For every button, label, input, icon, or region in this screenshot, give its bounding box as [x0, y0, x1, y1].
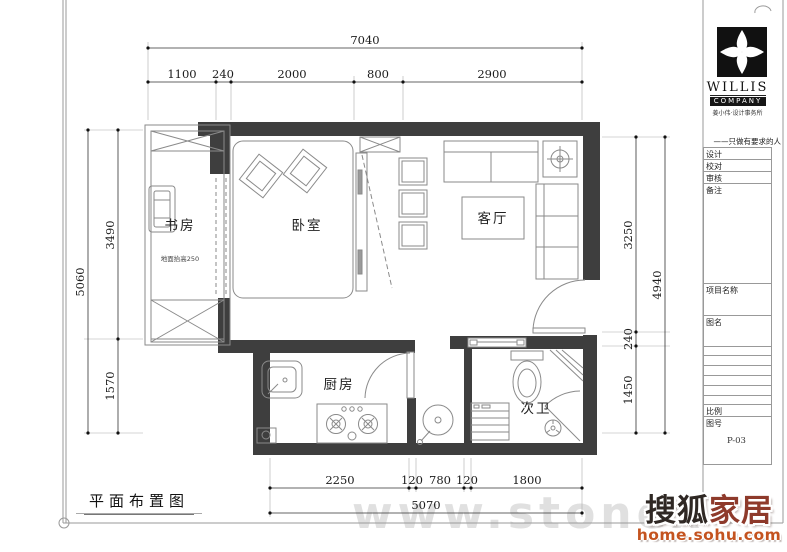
dim-right-total: 4940 — [650, 270, 664, 299]
field-empty-6 — [704, 396, 771, 405]
bathroom-fixtures — [468, 338, 583, 441]
field-empty-2 — [704, 356, 771, 366]
dim-bottom-2: 120 — [401, 473, 423, 487]
label-kitchen: 厨房 — [324, 377, 355, 393]
corner-shower — [556, 350, 583, 375]
dim-bottom-total: 5070 — [411, 498, 440, 512]
drawing-number: P-03 — [703, 436, 770, 446]
dim-right-3: 1450 — [621, 375, 635, 404]
sohu-brand-dark: 搜狐 — [645, 493, 709, 529]
field-project: 项目名称 — [704, 284, 771, 316]
sohu-url: home.sohu.com — [631, 528, 787, 544]
label-bath: 次卫 — [521, 401, 552, 417]
entry-door-leaf — [533, 328, 585, 333]
field-empty-1 — [704, 347, 771, 356]
dim-bottom-3: 780 — [429, 473, 451, 487]
stove — [317, 404, 387, 443]
field-review: 审核 — [704, 172, 771, 184]
dim-top-1: 1100 — [167, 67, 196, 81]
field-scale: 比例 — [704, 405, 771, 417]
brand-slogan: ——只做有要求的人 — [705, 136, 781, 147]
kitchen-door-leaf — [407, 352, 414, 398]
brand-rule — [710, 95, 766, 96]
brand-subtitle: 姜小伟·设计事务所 — [703, 108, 772, 117]
label-study-note: 地面抬高250 — [161, 254, 199, 263]
dim-top-3: 2000 — [277, 67, 306, 81]
hall-basin — [418, 405, 454, 445]
brand-willis: WILLIS — [703, 80, 772, 95]
floorplan-svg: 7040 1100 240 2000 800 2900 5060 3490 15… — [0, 0, 787, 552]
dim-left-2: 1570 — [103, 371, 117, 400]
sohu-brand-red: 家居 — [709, 493, 773, 529]
label-living: 客厅 — [478, 210, 509, 227]
dim-top-total: 7040 — [350, 33, 379, 47]
title-block: WILLIS COMPANY 姜小伟·设计事务所 ——只做有要求的人 设计 校对… — [703, 0, 785, 523]
dim-bottom-1: 2250 — [325, 473, 354, 487]
willis-logo-icon — [717, 27, 767, 77]
dim-right-1: 3250 — [621, 220, 635, 249]
dim-right-2: 240 — [621, 328, 635, 350]
drawing-sheet: www.stonex — [0, 0, 787, 552]
label-study: 书房 — [165, 218, 196, 234]
field-proof: 校对 — [704, 160, 771, 172]
dim-bottom-5: 1800 — [512, 473, 541, 487]
brand-company: COMPANY — [710, 97, 766, 106]
kitchen-fixtures — [257, 352, 414, 443]
entry-door-swing — [533, 280, 585, 330]
dim-bottom-4: 120 — [456, 473, 478, 487]
dim-top-5: 2900 — [477, 67, 506, 81]
kitchen-door-swing — [365, 353, 410, 398]
washing-machine — [471, 403, 509, 440]
bedroom-furniture — [233, 137, 427, 298]
field-design: 设计 — [704, 148, 771, 160]
living-furniture — [444, 141, 585, 333]
title-block-fields: 设计 校对 审核 备注 项目名称 图名 比例 图号 — [703, 147, 772, 465]
label-bedroom: 卧室 — [292, 217, 323, 234]
toilet-tank — [511, 351, 543, 360]
plan-title: 平面布置图 — [84, 490, 194, 515]
dim-left-1: 3490 — [103, 220, 117, 249]
dim-top-4: 800 — [367, 67, 389, 81]
field-empty-4 — [704, 376, 771, 386]
field-drawing: 图名 — [704, 316, 771, 347]
field-remark: 备注 — [704, 184, 771, 284]
field-empty-3 — [704, 366, 771, 376]
sohu-home-logo: 搜狐家居 home.sohu.com — [631, 496, 787, 544]
dim-left-total: 5060 — [73, 267, 87, 296]
dimension-texts: 7040 1100 240 2000 800 2900 5060 3490 15… — [73, 33, 664, 512]
dim-top-2: 240 — [212, 67, 234, 81]
plan-title-underline — [76, 513, 202, 514]
field-empty-5 — [704, 386, 771, 396]
